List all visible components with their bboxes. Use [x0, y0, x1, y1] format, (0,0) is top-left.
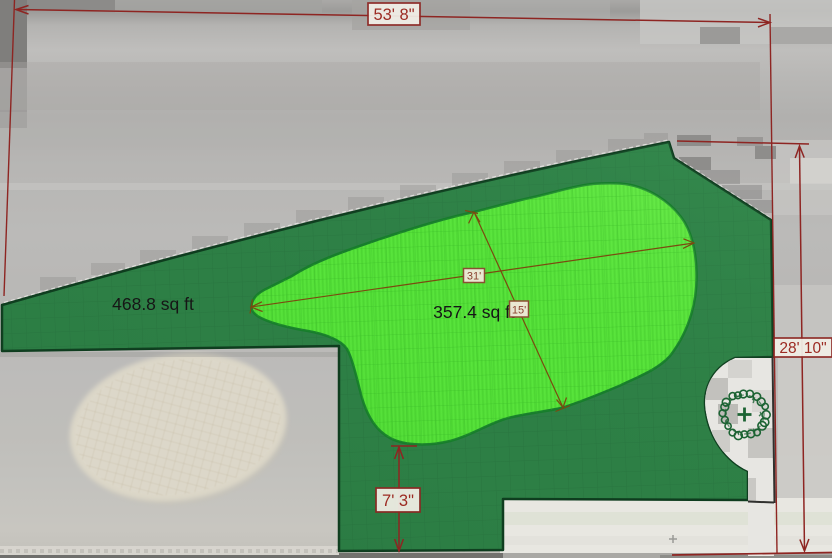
svg-text:357.4 sq ft: 357.4 sq ft	[433, 302, 515, 322]
svg-text:28' 10": 28' 10"	[779, 340, 826, 357]
svg-text:53' 8": 53' 8"	[373, 6, 414, 24]
svg-text:7' 3": 7' 3"	[382, 492, 414, 510]
svg-text:468.8 sq ft: 468.8 sq ft	[112, 294, 194, 314]
svg-text:31': 31'	[467, 271, 481, 283]
svg-text:15': 15'	[512, 305, 526, 317]
